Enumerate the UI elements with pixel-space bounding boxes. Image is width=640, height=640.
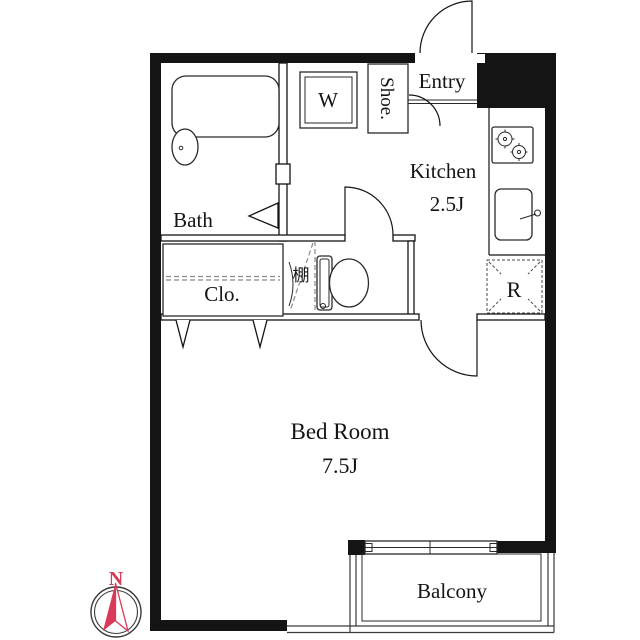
- entry-door-hinge-notch: [476, 54, 485, 63]
- closet-label: Clo.: [204, 282, 240, 306]
- wall-bath-closet: [161, 235, 345, 241]
- compass-needle-right: [116, 583, 129, 631]
- wall-toilet-top-right: [393, 235, 415, 241]
- entry-step-line: [408, 100, 477, 104]
- bathtub-icon: [172, 76, 279, 137]
- floor-plan: Bath W Shoe. Entry Kitchen 2.5J R Clo. 棚…: [0, 0, 640, 640]
- balcony-label: Balcony: [417, 579, 487, 603]
- outer-wall-top: [150, 53, 415, 63]
- washer-label: W: [318, 88, 338, 112]
- bedroom-door-swing-icon: [421, 320, 477, 376]
- kitchen-size-label: 2.5J: [430, 192, 464, 216]
- refrigerator-label: R: [507, 277, 522, 302]
- shoe-cabinet-label: Shoe.: [376, 77, 397, 120]
- entry-label: Entry: [419, 69, 466, 93]
- toilet-door-swing-icon: [345, 187, 393, 235]
- wall-bedroom-top-right: [477, 314, 545, 320]
- kitchen-sink-icon: [495, 189, 532, 240]
- stove-icon: [492, 127, 533, 163]
- toilet-bowl-icon: [330, 259, 369, 307]
- floor-plan-page: Bath W Shoe. Entry Kitchen 2.5J R Clo. 棚…: [0, 0, 640, 640]
- closet-door-mark-right: [253, 320, 267, 347]
- closet-door-mark-left: [176, 320, 190, 347]
- bedroom-label: Bed Room: [290, 419, 389, 444]
- window-left-post: [348, 540, 365, 555]
- compass-north-label: N: [109, 568, 124, 590]
- bath-label: Bath: [173, 208, 213, 232]
- kitchen-label: Kitchen: [410, 159, 477, 183]
- shelf-label: 棚: [293, 266, 310, 285]
- bath-door-icon: [249, 203, 278, 228]
- washbasin-icon: [172, 129, 198, 165]
- front-door-swing-icon: [420, 1, 472, 53]
- outer-wall-entry-corner: [477, 53, 556, 108]
- outer-wall-window-right: [497, 541, 545, 553]
- bath-wall-vertical: [279, 63, 287, 241]
- outer-wall-right: [545, 108, 556, 553]
- bedroom-size-label: 7.5J: [322, 453, 359, 478]
- faucet-base-icon: [535, 210, 541, 216]
- outer-wall-bottom-left: [150, 620, 287, 631]
- compass-icon: N: [91, 568, 141, 637]
- toilet-wall-right: [408, 241, 414, 318]
- bath-door-jamb: [276, 164, 290, 184]
- outer-wall-left: [150, 53, 161, 631]
